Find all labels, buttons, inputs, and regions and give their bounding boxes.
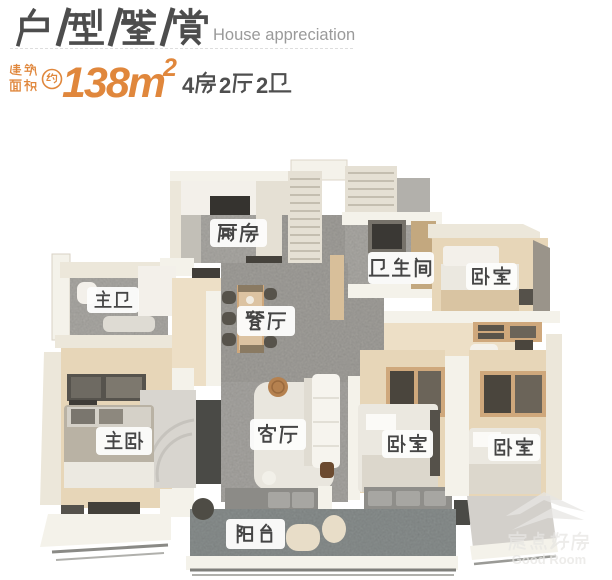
svg-text:Good Room: Good Room [512,552,586,567]
svg-text:2: 2 [162,54,177,82]
svg-text:138m: 138m [62,59,165,107]
svg-text:4: 4 [182,73,195,98]
svg-text:2: 2 [219,73,231,98]
svg-text:House appreciation: House appreciation [213,26,355,44]
svg-text:2: 2 [256,73,268,98]
